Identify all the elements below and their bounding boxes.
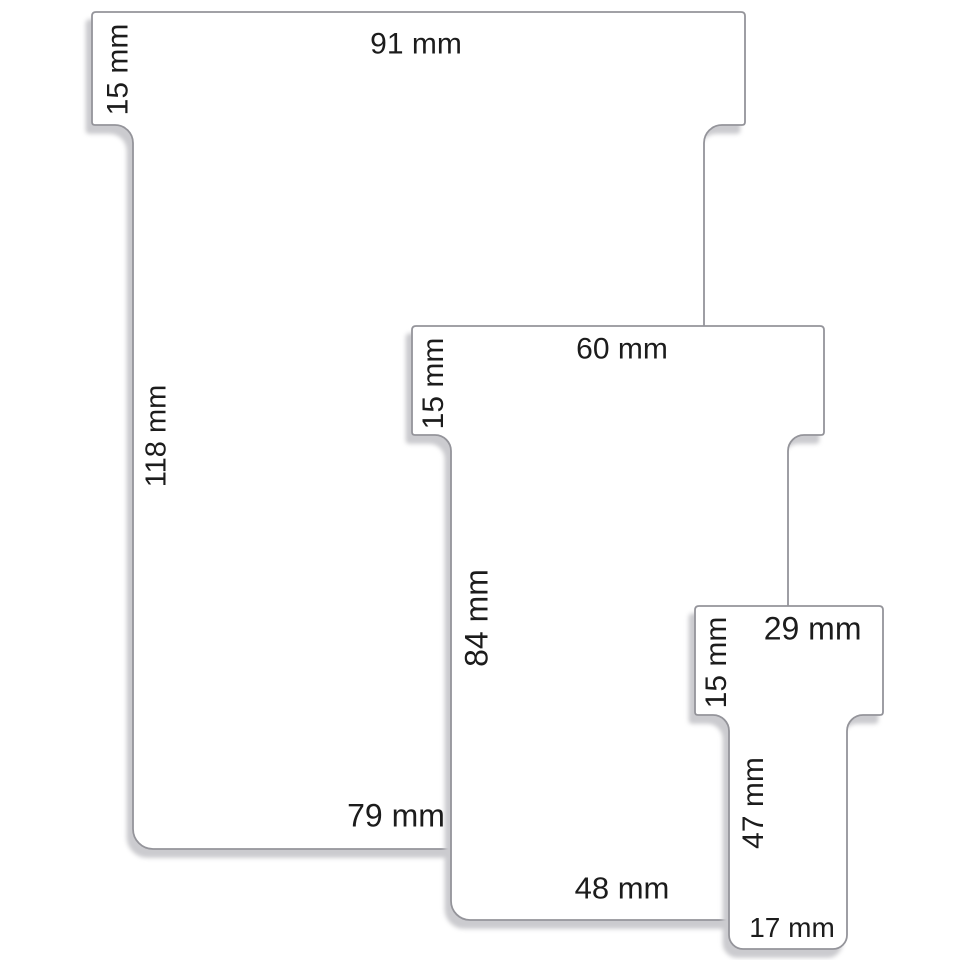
svg-text:60 mm: 60 mm	[576, 333, 668, 366]
svg-text:118 mm: 118 mm	[140, 385, 172, 488]
svg-text:79 mm: 79 mm	[347, 798, 445, 834]
svg-text:91 mm: 91 mm	[370, 27, 462, 60]
svg-text:47 mm: 47 mm	[737, 757, 770, 849]
svg-text:15 mm: 15 mm	[700, 617, 733, 709]
svg-text:15 mm: 15 mm	[101, 24, 134, 116]
svg-text:48 mm: 48 mm	[575, 871, 670, 906]
svg-text:15 mm: 15 mm	[417, 338, 450, 430]
svg-text:84 mm: 84 mm	[459, 569, 495, 667]
svg-text:17 mm: 17 mm	[749, 912, 835, 943]
svg-text:29 mm: 29 mm	[764, 610, 862, 646]
